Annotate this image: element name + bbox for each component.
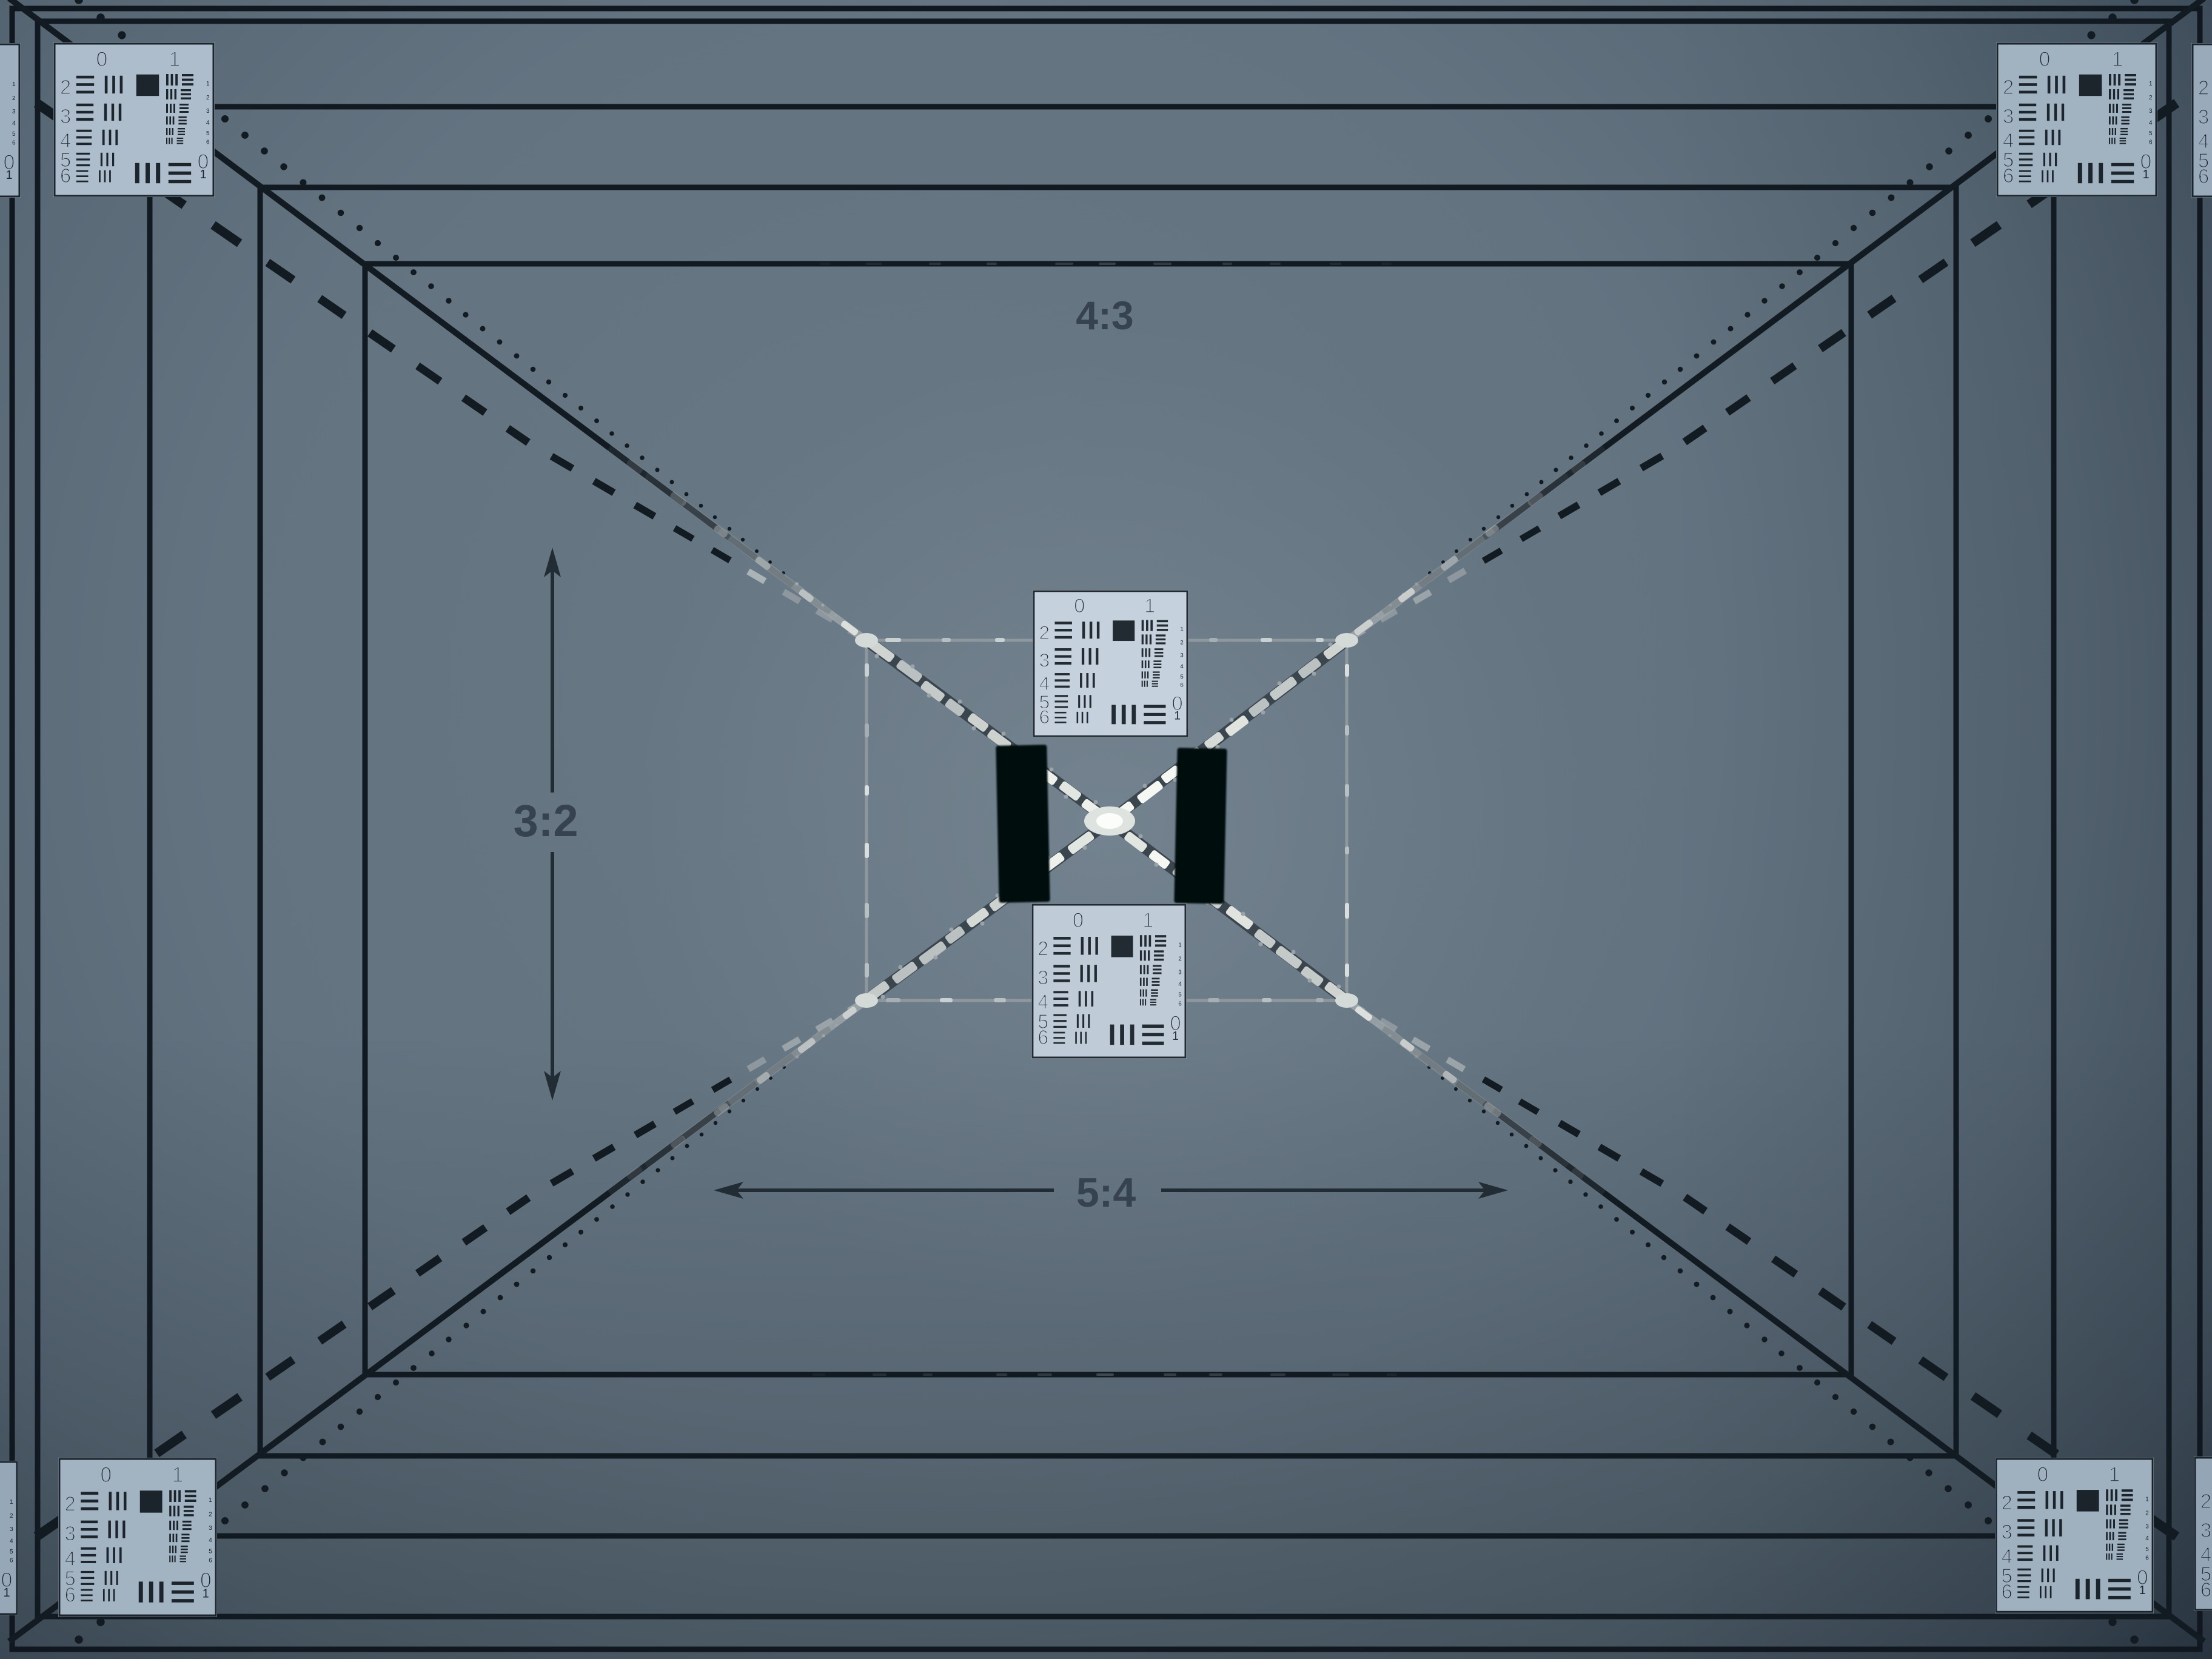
svg-text:3:2: 3:2 — [514, 796, 578, 846]
svg-text:4:3: 4:3 — [1076, 293, 1133, 338]
svg-text:5:4: 5:4 — [1076, 1170, 1136, 1216]
